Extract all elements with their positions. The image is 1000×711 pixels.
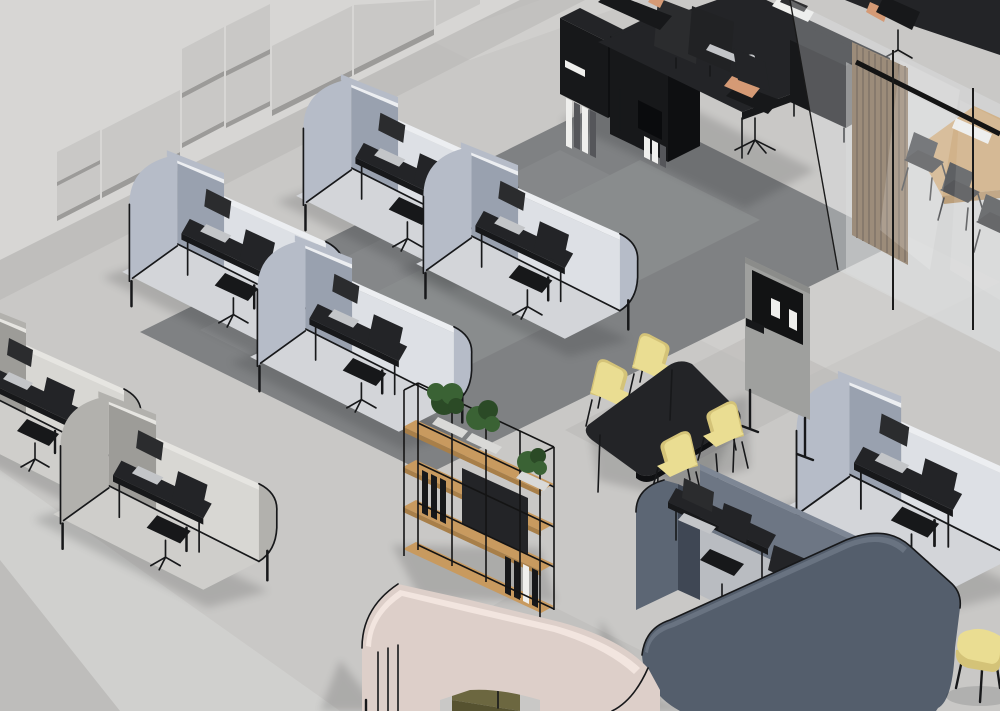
office-scene	[0, 0, 1000, 711]
office-isometric-render	[0, 0, 1000, 711]
